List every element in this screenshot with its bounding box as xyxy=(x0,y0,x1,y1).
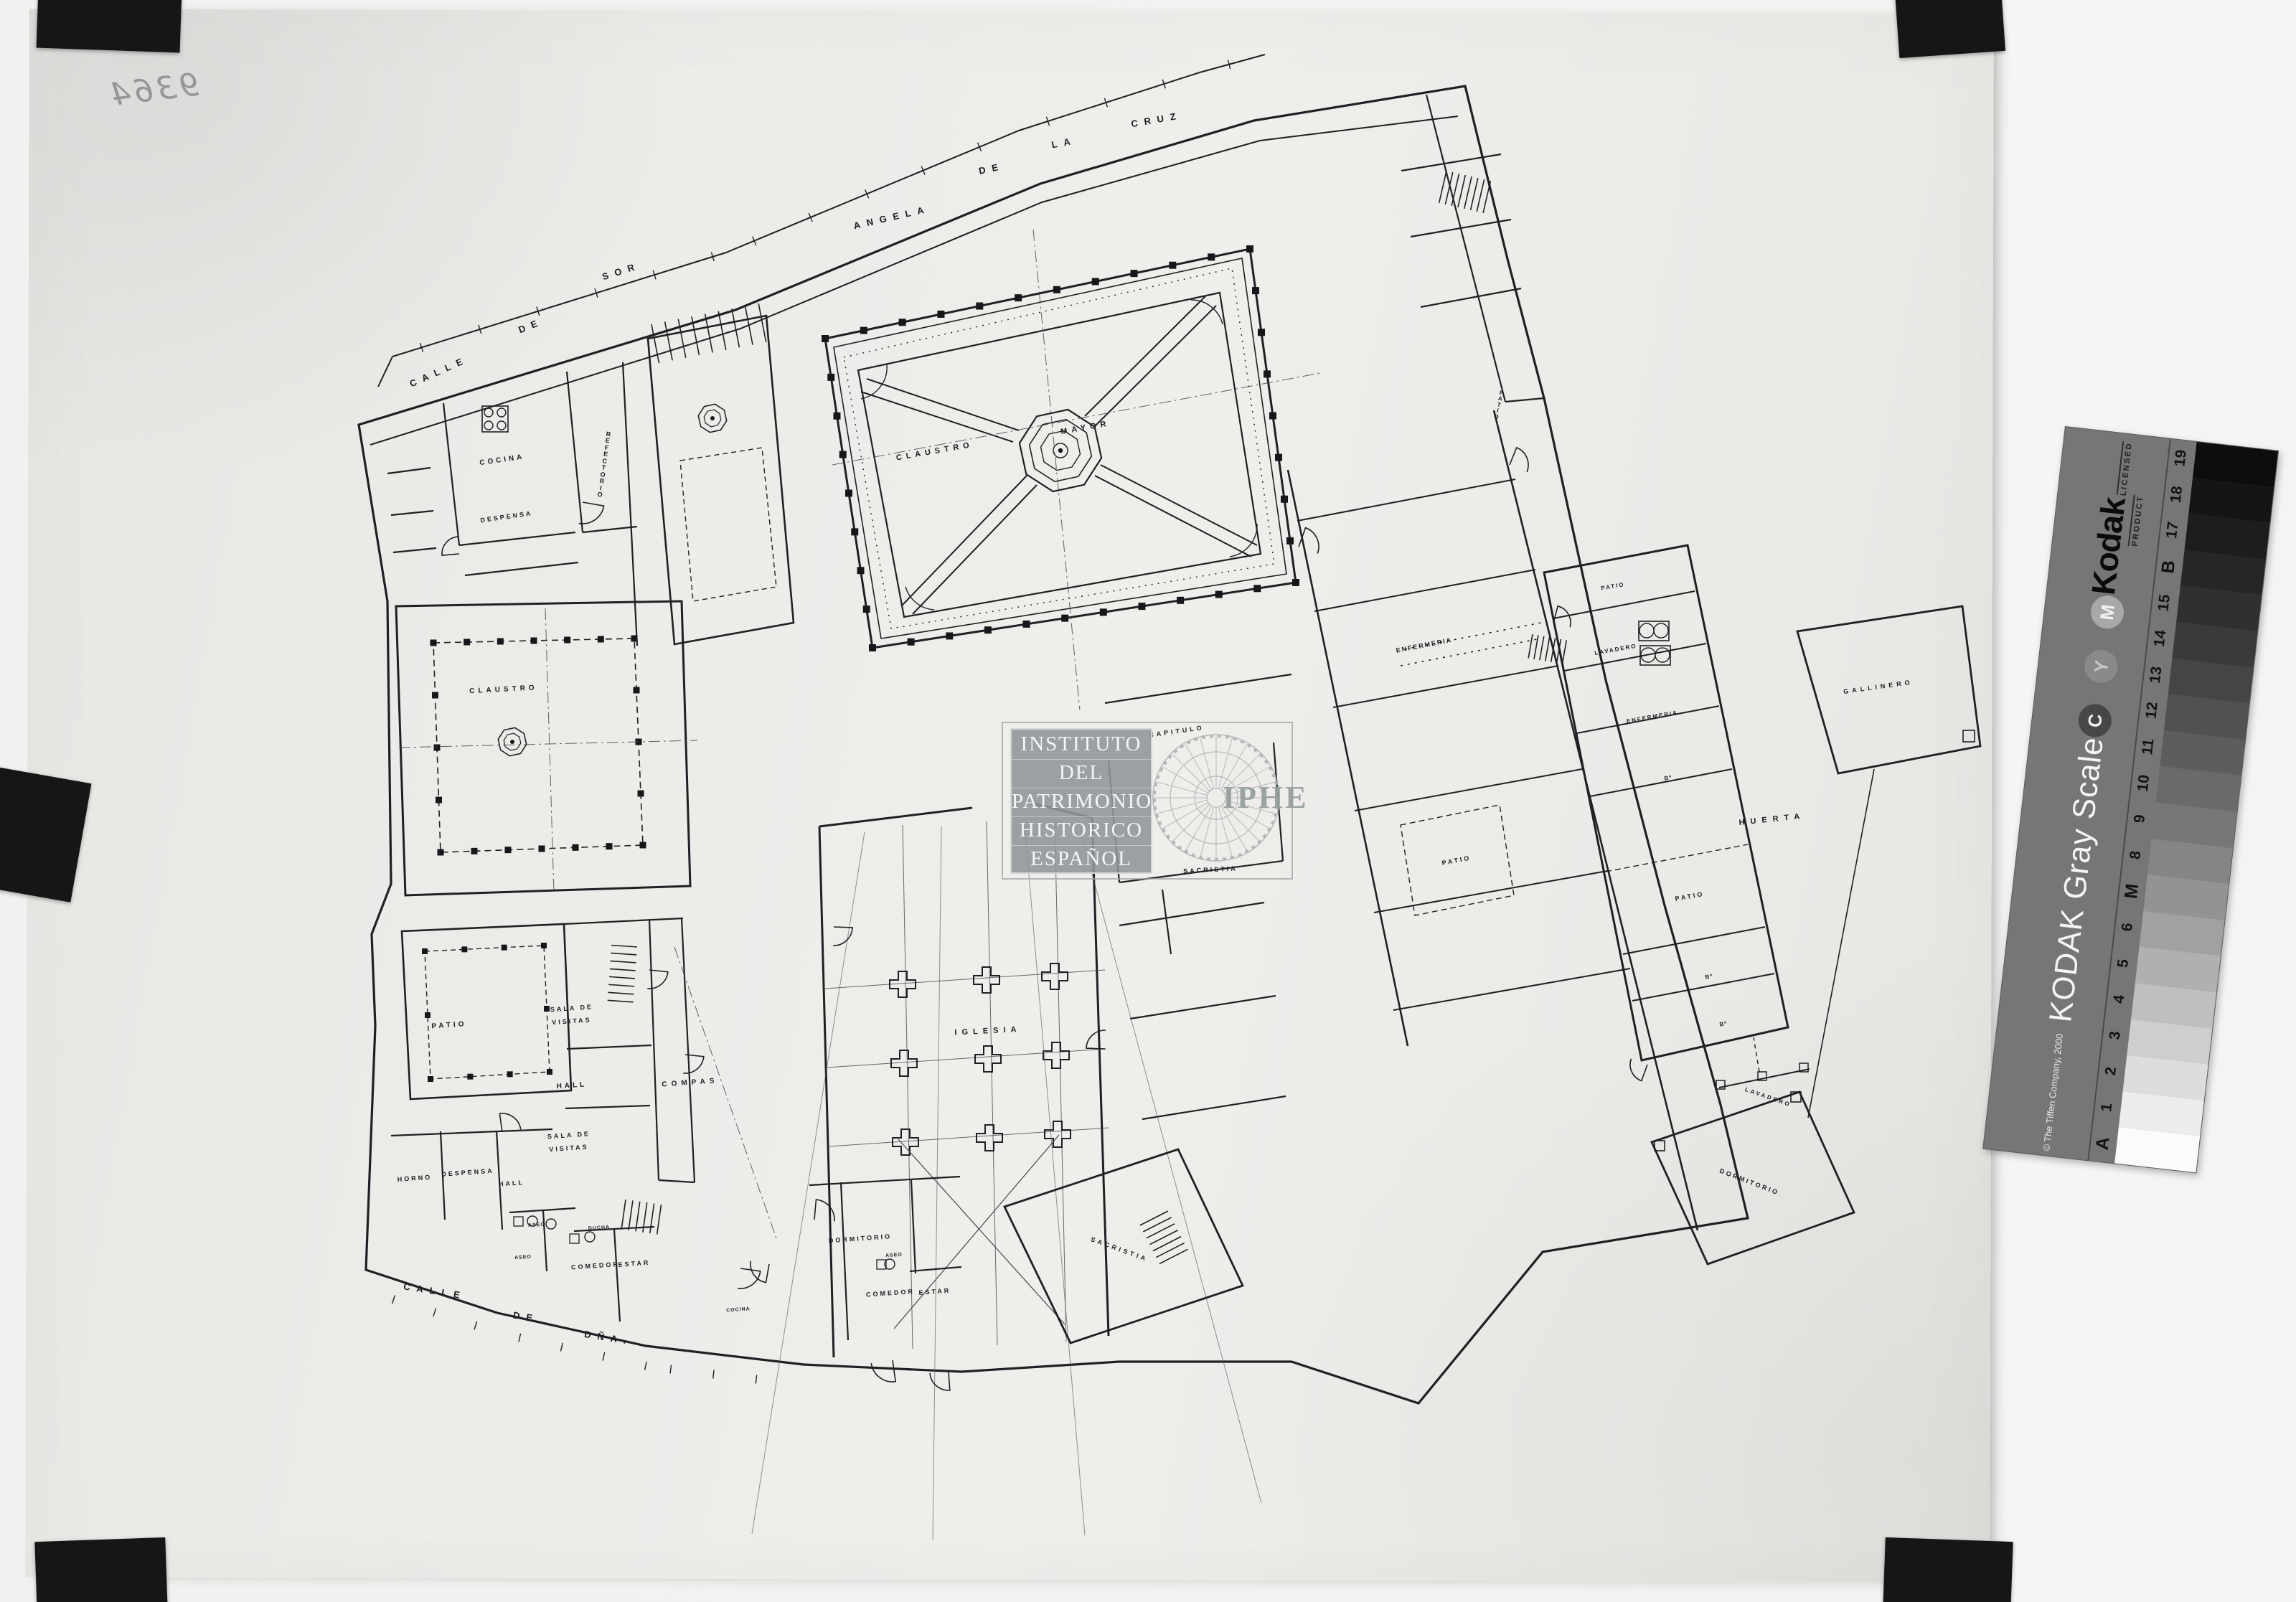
kodak-step-label: 18 xyxy=(2161,475,2192,514)
kodak-cmy-circles: CYM xyxy=(2076,594,2125,739)
kodak-step-label: 5 xyxy=(2108,943,2139,983)
kodak-cmy-C: C xyxy=(2076,702,2113,739)
watermark-line: HISTORICO xyxy=(1012,816,1151,842)
corner-tab-bottom-left xyxy=(34,1537,167,1602)
kodak-step-label: 6 xyxy=(2112,908,2143,947)
kodak-step-label: 19 xyxy=(2165,439,2196,479)
watermark-line: ESPAÑOL xyxy=(1012,845,1151,871)
kodak-step-label: A xyxy=(2087,1124,2118,1164)
kodak-step-label: 9 xyxy=(2125,799,2155,839)
kodak-step-label: 1 xyxy=(2092,1088,2122,1127)
watermark-line: INSTITUTO xyxy=(1012,731,1151,756)
watermark-line: PATRIMONIO xyxy=(1012,788,1151,814)
kodak-step-label: 13 xyxy=(2141,655,2172,694)
kodak-step-label: 2 xyxy=(2096,1052,2127,1091)
kodak-brand: Kodak xyxy=(2084,496,2132,597)
kodak-copyright: © The Tiffen Company, 2000 xyxy=(2041,1033,2065,1152)
kodak-step-label: 4 xyxy=(2104,980,2135,1019)
corner-tab-bottom-right xyxy=(1883,1537,2013,1602)
corner-tab-top-right xyxy=(1895,0,2005,58)
watermark: INSTITUTO DEL PATRIMONIO HISTORICO ESPAÑ… xyxy=(1010,728,1152,874)
kodak-step-label: 17 xyxy=(2158,511,2188,550)
kodak-step-label: 12 xyxy=(2137,692,2168,731)
kodak-step-label: M xyxy=(2116,872,2147,911)
kodak-step-label: 11 xyxy=(2132,727,2163,767)
scan-stage: 9364 CALLEDESORANGELADELACRUZCALLEDEDÑA.… xyxy=(0,0,2296,1602)
kodak-cmy-Y: Y xyxy=(2083,649,2119,685)
corner-tab-top-left xyxy=(37,0,182,52)
kodak-title: KODAK Gray Scale xyxy=(2043,735,2111,1024)
kodak-cmy-M: M xyxy=(2089,594,2126,631)
kodak-step-label: 10 xyxy=(2129,763,2160,803)
watermark-line: DEL xyxy=(1012,759,1151,785)
kodak-step-label: 14 xyxy=(2145,619,2176,659)
kodak-step-label: 8 xyxy=(2120,836,2151,875)
kodak-step-label: B xyxy=(2153,547,2184,586)
kodak-logo: Kodak LICENSED PRODUCT xyxy=(2084,438,2152,599)
watermark-acronym: IPHE xyxy=(1223,779,1309,816)
kodak-step-label: 3 xyxy=(2100,1016,2131,1055)
kodak-step-label: 15 xyxy=(2149,583,2180,623)
